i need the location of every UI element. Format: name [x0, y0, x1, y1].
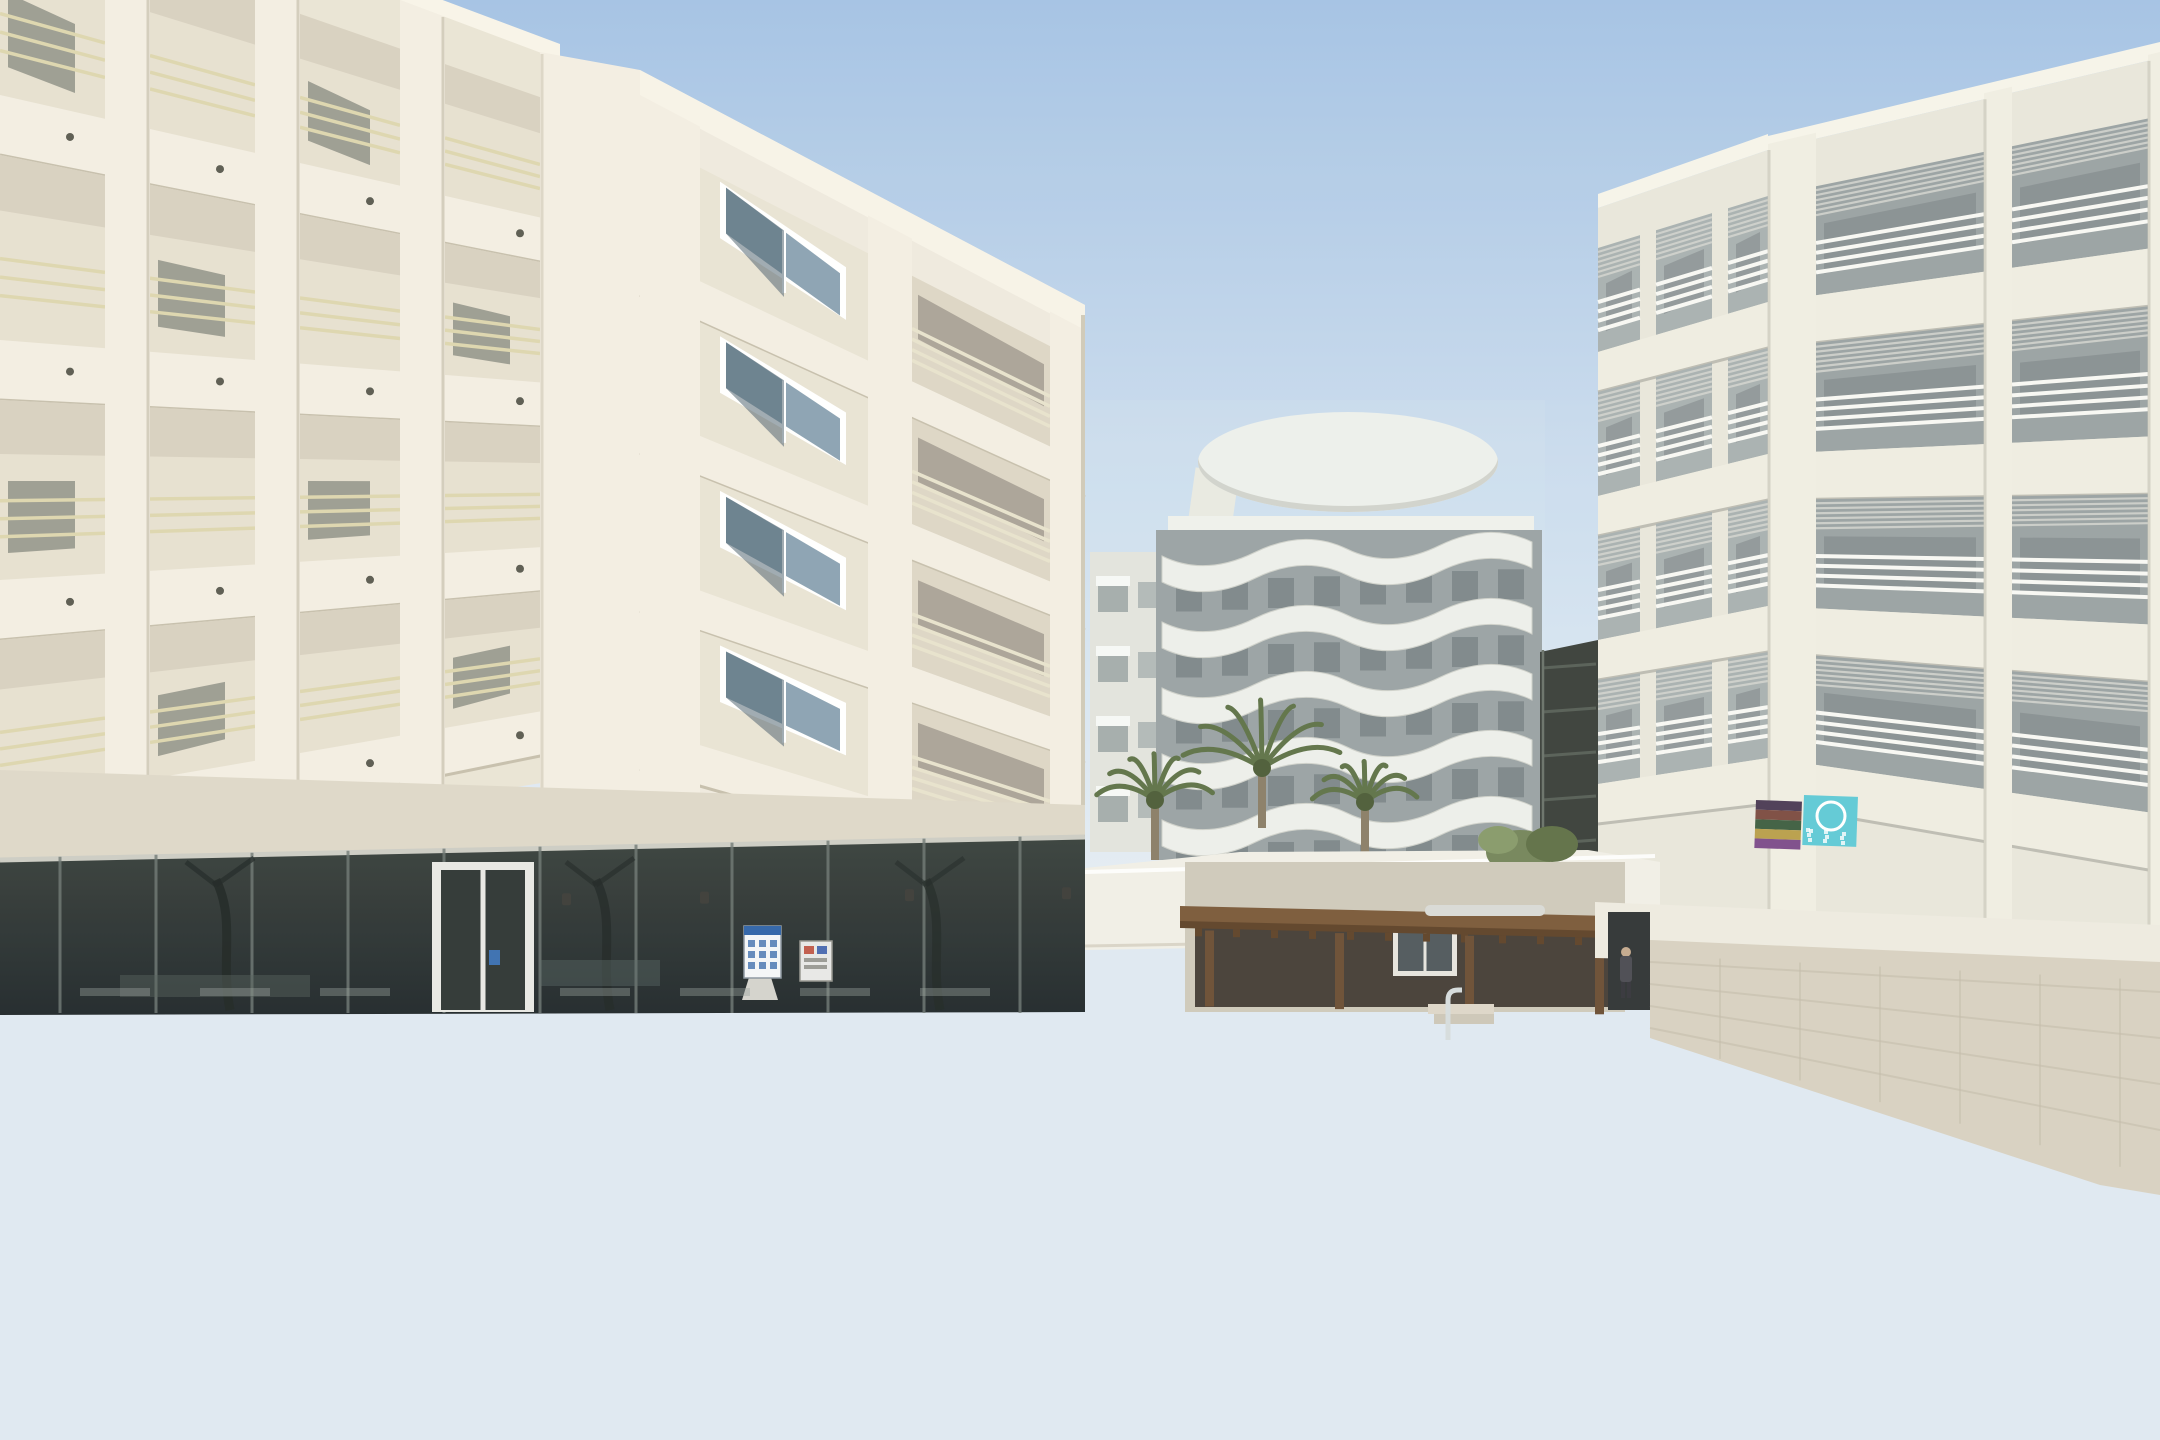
- hotel-pool-photo: Sunny hotel courtyard: white apartment b…: [0, 0, 2160, 1440]
- photo-canvas: Sunny hotel courtyard: white apartment b…: [0, 0, 2160, 1440]
- sunlight-wash: [0, 0, 2160, 1440]
